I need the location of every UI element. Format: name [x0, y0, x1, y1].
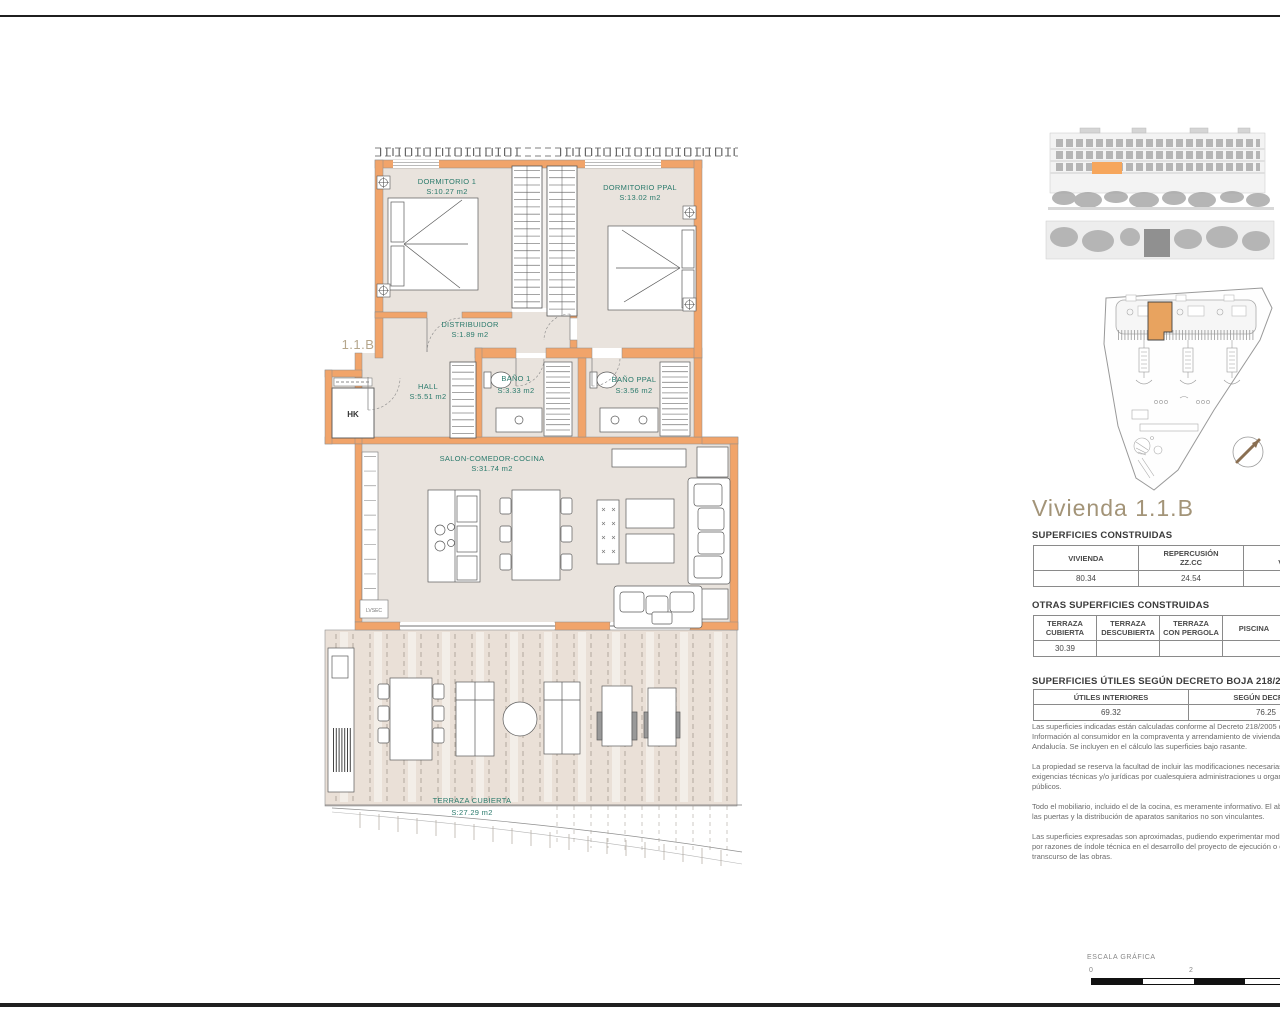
room-label-dormitorio-1: DORMITORIO 1: [418, 177, 476, 186]
col-header: TERRAZA CUBIERTA: [1034, 616, 1097, 641]
room-area-bano-1: S:3.33 m2: [498, 386, 535, 395]
room-label-bano-1: BAÑO 1: [501, 374, 530, 383]
north-compass: [1233, 437, 1263, 467]
note-paragraph: Todo el mobiliario, incluido el de la co…: [1032, 802, 1280, 822]
legal-notes: Las superficies indicadas están calculad…: [1032, 722, 1280, 872]
cell-value: 24.54: [1139, 571, 1244, 587]
room-label-distribuidor: DISTRIBUIDOR: [441, 320, 499, 329]
col-header: ÚTILES INTERIORES: [1034, 690, 1189, 705]
cell-value: 30.39: [1034, 641, 1097, 657]
bed-dormitorio-1: [388, 198, 478, 290]
cell-value: [1160, 641, 1223, 657]
cell-value: 80.34: [1034, 571, 1139, 587]
note-paragraph: Las superficies indicadas están calculad…: [1032, 722, 1280, 752]
drawing-sheet: { "colors": { "wall_accent": "#f1a46a", …: [0, 0, 1280, 1024]
room-area-distribuidor: S:1.89 m2: [452, 330, 489, 339]
scale-tick-0: 0: [1089, 967, 1093, 974]
col-header: VIVIENDA: [1034, 546, 1139, 571]
hall-closet: [450, 362, 476, 438]
terrain-contours: [332, 806, 742, 866]
cell-value: [1097, 641, 1160, 657]
bed-dormitorio-ppal: [608, 226, 696, 310]
site-plan-image: [1092, 282, 1280, 504]
facade-hatch: [375, 148, 738, 156]
kitchen-island: [428, 490, 480, 582]
col-header: TOTAL VIVIENDA: [1244, 546, 1280, 571]
room-area-hall: S:5.51 m2: [410, 392, 447, 401]
room-label-salon: SALON-COMEDOR-COCINA: [440, 454, 545, 463]
table-superficies-construidas: VIVIENDA REPERCUSIÓN ZZ.CC TOTAL VIVIEND…: [1033, 545, 1280, 587]
room-area-dormitorio-1: S:10.27 m2: [426, 187, 467, 196]
room-label-hall: HALL: [418, 382, 438, 391]
dining-table: [500, 490, 572, 580]
room-label-terraza: TERRAZA CUBIERTA: [433, 796, 512, 805]
col-header: TERRAZA DESCUBIERTA: [1097, 616, 1160, 641]
room-area-terraza: S:27.29 m2: [451, 808, 492, 817]
sheet-top-border: [0, 15, 1280, 17]
appliance-label: LVSEC: [366, 608, 382, 614]
note-paragraph: La propiedad se reserva la facultad de i…: [1032, 762, 1280, 792]
scale-bar: [1091, 978, 1280, 985]
floor-plan: HK LVSEC: [300, 138, 760, 913]
cell-value: 69.32: [1034, 705, 1189, 721]
room-label-dormitorio-ppal: DORMITORIO PPAL: [603, 183, 677, 192]
sheet-bottom-border: [0, 1003, 1280, 1007]
building-elevation-image: [1040, 125, 1280, 265]
table-superficies-utiles: ÚTILES INTERIORES SEGÚN DECRETO 69.32 76…: [1033, 689, 1280, 721]
section-label-construidas: SUPERFICIES CONSTRUIDAS: [1032, 530, 1172, 541]
cell-value: [1223, 641, 1280, 657]
col-header: TERRAZA CON PERGOLA: [1160, 616, 1223, 641]
cell-value: 76.25: [1189, 705, 1280, 721]
scale-tick-2: 2: [1189, 967, 1193, 974]
unit-label: 1.1.B: [342, 337, 375, 352]
room-label-bano-ppal: BAÑO PPAL: [612, 375, 657, 384]
section-label-otras: OTRAS SUPERFICIES CONSTRUIDAS: [1032, 600, 1209, 611]
room-area-bano-ppal: S:3.56 m2: [616, 386, 653, 395]
section-label-utiles: SUPERFICIES ÚTILES SEGÚN DECRETO BOJA 21…: [1032, 676, 1280, 687]
col-header: REPERCUSIÓN ZZ.CC: [1139, 546, 1244, 571]
scale-label: ESCALA GRÁFICA: [1087, 954, 1156, 961]
col-header: PISCINA: [1223, 616, 1280, 641]
col-header: SEGÚN DECRETO: [1189, 690, 1280, 705]
note-paragraph: Las superficies expresadas son aproximad…: [1032, 832, 1280, 862]
elevation-unit-highlight: [1092, 162, 1122, 174]
graphic-scale: ESCALA GRÁFICA 0 2: [1085, 954, 1280, 998]
room-area-dormitorio-ppal: S:13.02 m2: [619, 193, 660, 202]
table-otras-superficies: TERRAZA CUBIERTA TERRAZA DESCUBIERTA TER…: [1033, 615, 1280, 657]
room-area-salon: S:31.74 m2: [471, 464, 512, 473]
cell-value: 104.88: [1244, 571, 1280, 587]
hk-label: HK: [347, 410, 359, 419]
page-title: Vivienda 1.1.B: [1032, 495, 1194, 522]
